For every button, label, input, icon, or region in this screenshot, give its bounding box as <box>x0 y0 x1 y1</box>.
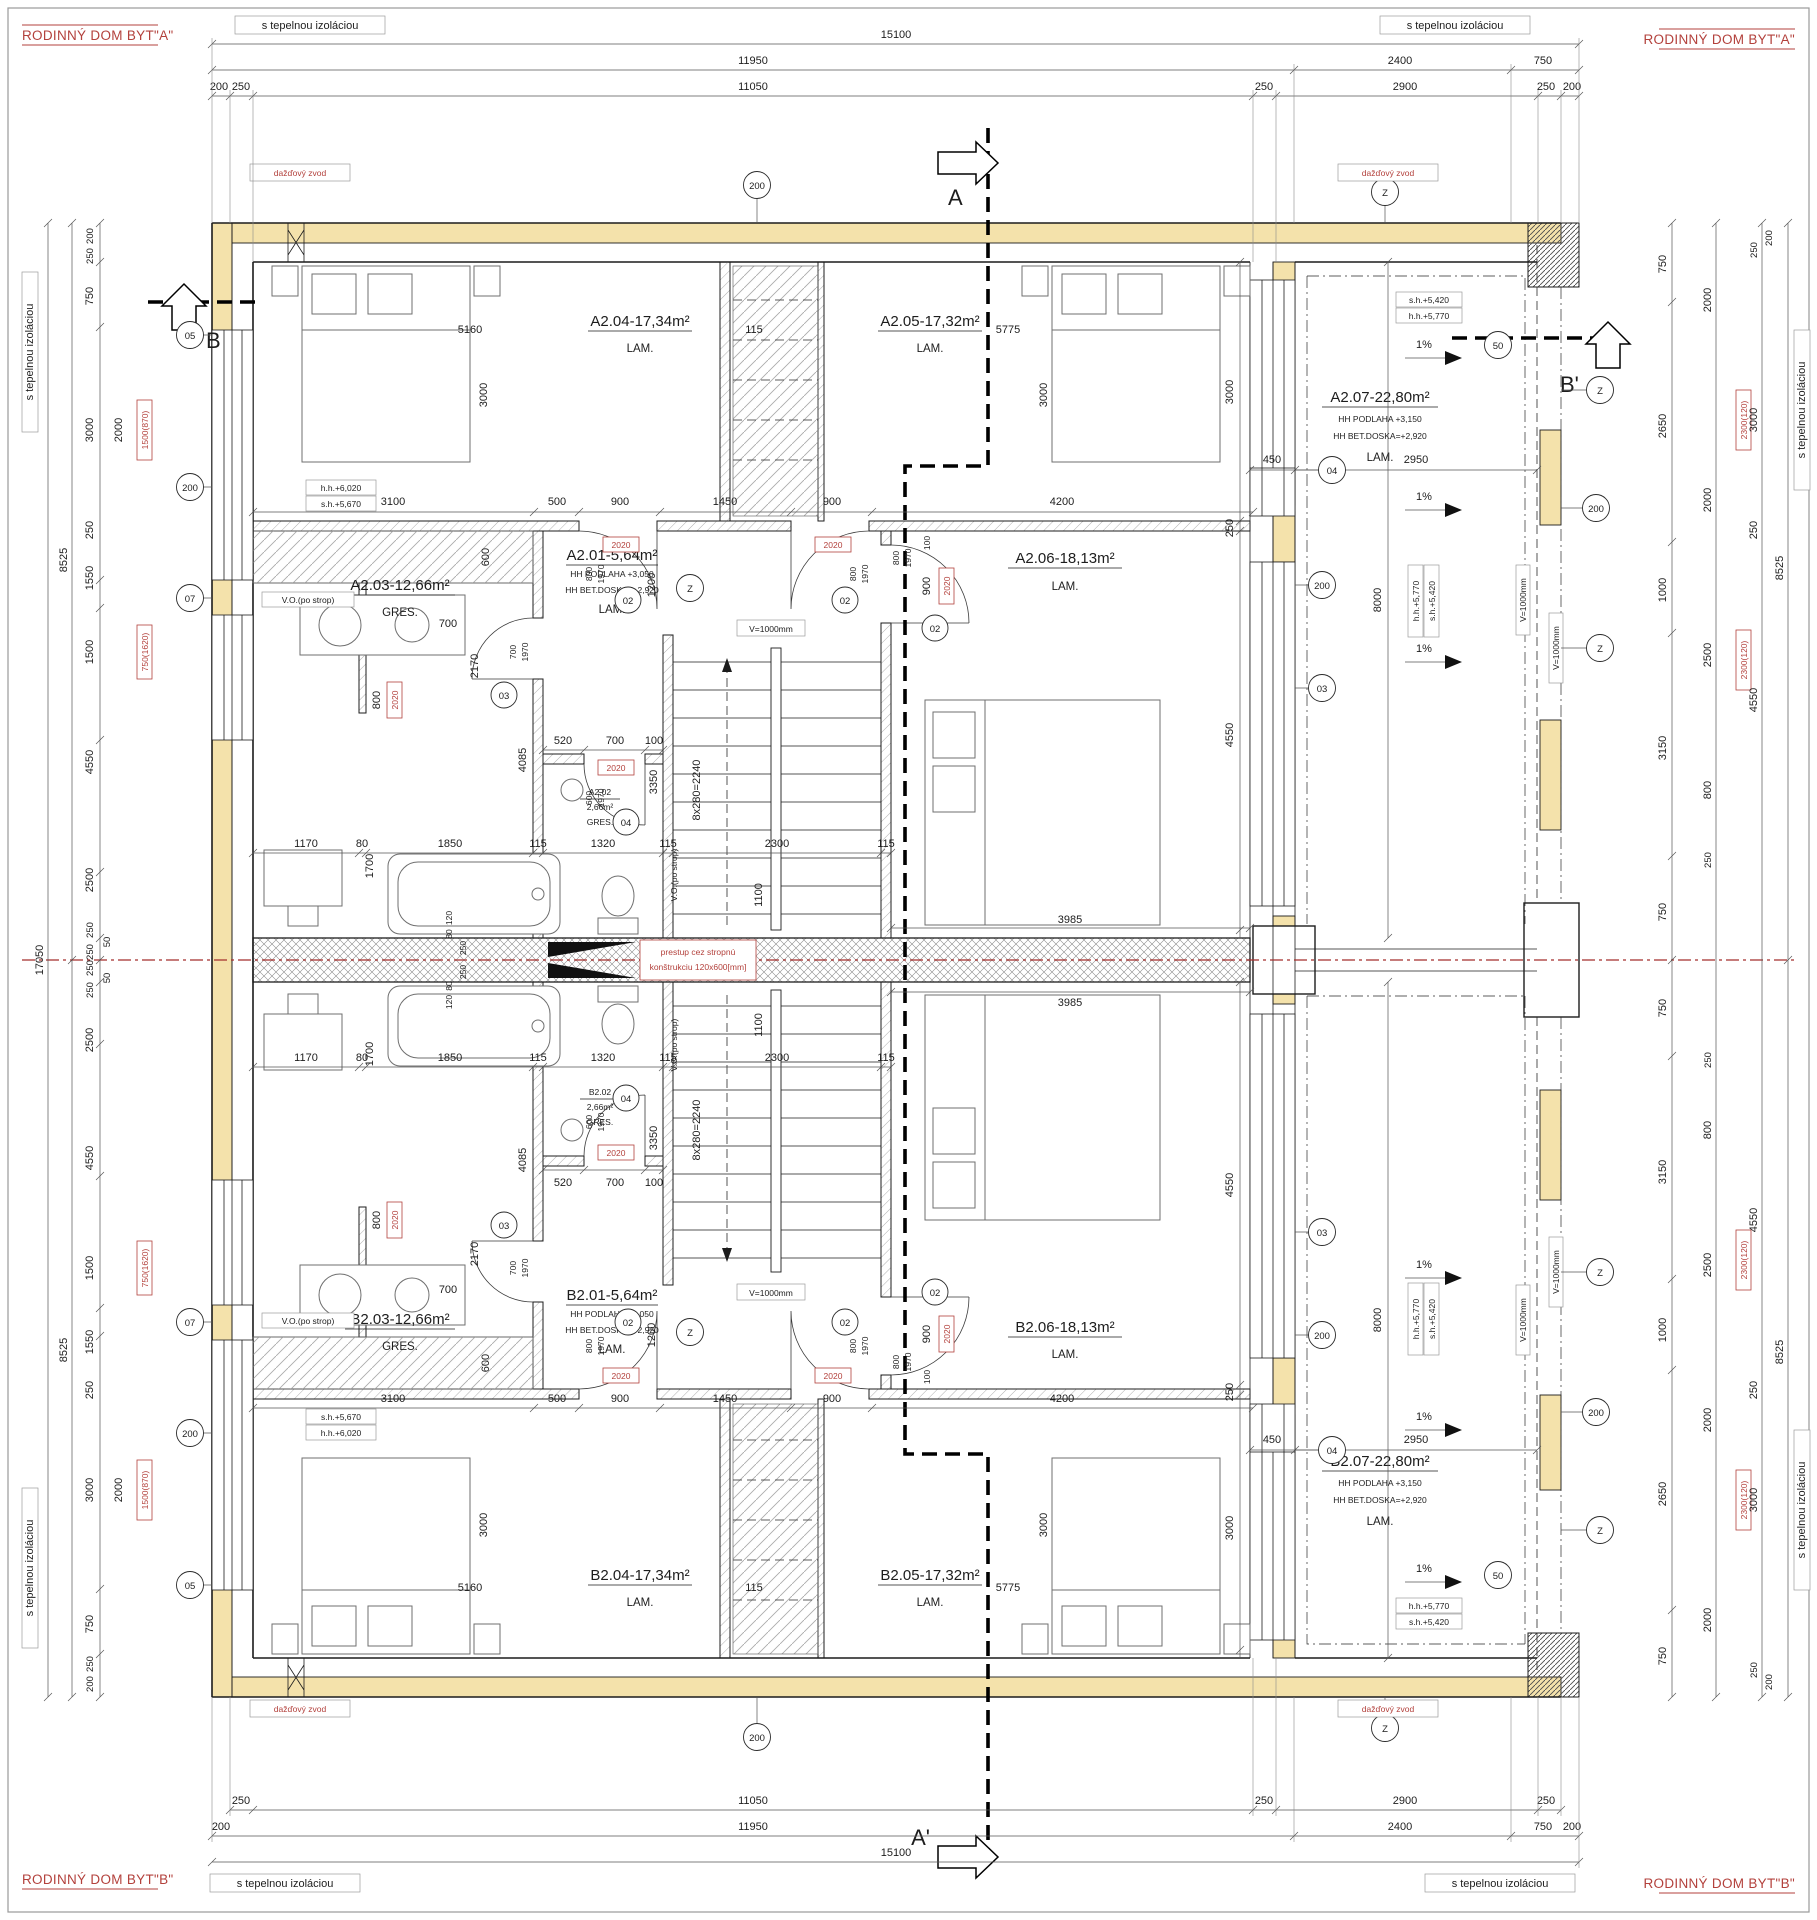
svg-text:LAM.: LAM. <box>627 1597 654 1609</box>
svg-text:900: 900 <box>921 577 933 595</box>
svg-text:3350: 3350 <box>648 1126 660 1150</box>
terrace-pier <box>1540 430 1561 525</box>
svg-text:HH PODLAHA +3,150: HH PODLAHA +3,150 <box>1338 414 1422 424</box>
svg-text:50: 50 <box>1493 341 1504 352</box>
svg-text:1500: 1500 <box>84 1256 96 1280</box>
svg-text:V=1000mm: V=1000mm <box>1518 578 1528 622</box>
svg-text:200: 200 <box>749 1733 765 1744</box>
svg-text:200: 200 <box>1764 1674 1775 1690</box>
svg-text:2950: 2950 <box>1404 454 1428 466</box>
svg-text:3000: 3000 <box>1224 1516 1236 1540</box>
svg-text:250: 250 <box>1537 81 1555 93</box>
svg-text:GRES.: GRES. <box>382 607 418 619</box>
svg-text:2000: 2000 <box>1702 1608 1714 1632</box>
svg-text:s tepelnou izoláciou: s tepelnou izoláciou <box>1796 362 1808 459</box>
svg-text:03: 03 <box>499 691 510 702</box>
svg-text:1970: 1970 <box>596 564 606 583</box>
section-a-label: A <box>948 185 963 210</box>
svg-text:4550: 4550 <box>1224 723 1236 747</box>
svg-text:GRES.: GRES. <box>382 1341 418 1353</box>
svg-text:HH BET.DOSKA=+2,920: HH BET.DOSKA=+2,920 <box>1333 431 1427 441</box>
svg-text:500: 500 <box>548 1393 566 1405</box>
svg-text:2300: 2300 <box>765 838 789 850</box>
svg-text:1850: 1850 <box>438 1052 462 1064</box>
svg-text:2500: 2500 <box>1702 1253 1714 1277</box>
svg-text:04: 04 <box>1327 466 1338 477</box>
svg-text:1170: 1170 <box>294 1052 318 1064</box>
svg-text:3000: 3000 <box>1748 408 1760 432</box>
svg-text:115: 115 <box>529 838 547 850</box>
svg-text:15100: 15100 <box>881 29 912 41</box>
svg-text:3000: 3000 <box>478 1513 490 1537</box>
svg-text:s tepelnou izoláciou: s tepelnou izoláciou <box>24 304 36 401</box>
svg-text:3985: 3985 <box>1058 914 1082 926</box>
stair-height-note: V=1000mm <box>749 624 793 634</box>
svg-text:115: 115 <box>745 324 763 336</box>
svg-text:600: 600 <box>480 548 492 566</box>
room-a204: A2.04-17,34m² <box>590 313 689 330</box>
section-a-prime-label: A' <box>911 1825 930 1850</box>
svg-text:2020: 2020 <box>942 1324 952 1343</box>
svg-text:02: 02 <box>930 1288 941 1299</box>
svg-text:600: 600 <box>584 1115 594 1129</box>
svg-text:2020: 2020 <box>607 1148 626 1158</box>
svg-text:1%: 1% <box>1416 339 1432 351</box>
svg-text:1320: 1320 <box>591 838 615 850</box>
svg-text:3000: 3000 <box>1038 1513 1050 1537</box>
svg-text:2020: 2020 <box>390 1210 400 1229</box>
svg-text:3350: 3350 <box>648 770 660 794</box>
svg-text:1%: 1% <box>1416 643 1432 655</box>
svg-text:3000: 3000 <box>84 418 96 442</box>
svg-text:800: 800 <box>371 691 383 709</box>
title-byt-b-right: RODINNÝ DOM BYT"B" <box>1644 1876 1796 1891</box>
svg-text:h.h.+6,020: h.h.+6,020 <box>321 1428 362 1438</box>
svg-text:700: 700 <box>439 1284 457 1296</box>
svg-text:2650: 2650 <box>1657 414 1669 438</box>
svg-text:4550: 4550 <box>1224 1173 1236 1197</box>
svg-text:4550: 4550 <box>1748 1208 1760 1232</box>
svg-text:800: 800 <box>891 551 901 565</box>
svg-text:HH BET.DOSKA=+2,920: HH BET.DOSKA=+2,920 <box>1333 1495 1427 1505</box>
svg-text:1%: 1% <box>1416 1411 1432 1423</box>
svg-text:3000: 3000 <box>1748 1488 1760 1512</box>
svg-text:80: 80 <box>444 929 454 939</box>
svg-text:450: 450 <box>1263 454 1281 466</box>
svg-text:s tepelnou izoláciou: s tepelnou izoláciou <box>24 1520 36 1617</box>
svg-text:800: 800 <box>848 567 858 581</box>
insulation-top <box>232 223 1561 243</box>
svg-text:8525: 8525 <box>1774 556 1786 580</box>
svg-text:V=1000mm: V=1000mm <box>1551 626 1561 670</box>
svg-text:2000: 2000 <box>1702 1408 1714 1432</box>
room-a206: A2.06-18,13m² <box>1015 550 1114 567</box>
svg-text:h.h.+5,770: h.h.+5,770 <box>1409 311 1450 321</box>
svg-text:900: 900 <box>611 1393 629 1405</box>
svg-text:1100: 1100 <box>753 883 765 907</box>
svg-text:3000: 3000 <box>1224 380 1236 404</box>
svg-text:250: 250 <box>1255 1795 1273 1807</box>
svg-text:200: 200 <box>85 228 96 244</box>
rain-drain-label: dažďový zvod <box>274 168 327 178</box>
svg-text:8000: 8000 <box>1372 588 1384 612</box>
svg-text:750: 750 <box>84 287 96 305</box>
svg-text:800: 800 <box>1702 781 1714 799</box>
svg-text:h.h.+5,770: h.h.+5,770 <box>1409 1601 1450 1611</box>
svg-text:50: 50 <box>102 937 113 948</box>
svg-text:02: 02 <box>840 596 851 607</box>
svg-text:s.h.+5,420: s.h.+5,420 <box>1427 581 1437 621</box>
svg-text:1500(870): 1500(870) <box>140 1470 150 1509</box>
svg-text:120: 120 <box>444 995 454 1009</box>
svg-text:250: 250 <box>1748 521 1760 539</box>
svg-text:1000: 1000 <box>1657 1318 1669 1342</box>
svg-text:115: 115 <box>659 838 677 850</box>
svg-text:1450: 1450 <box>713 496 737 508</box>
svg-text:2020: 2020 <box>824 1371 843 1381</box>
svg-text:3000: 3000 <box>1038 383 1050 407</box>
svg-text:1970: 1970 <box>860 1336 870 1355</box>
plan-svg: V=1000mm V=1000mm A A' B B' pres <box>0 0 1817 1920</box>
svg-text:4200: 4200 <box>1050 1393 1074 1405</box>
svg-text:11950: 11950 <box>738 1821 768 1833</box>
svg-text:2500: 2500 <box>84 1028 96 1052</box>
svg-text:750: 750 <box>1657 999 1669 1017</box>
svg-text:200: 200 <box>182 1429 198 1440</box>
room-b203: B2.03-12,66m² <box>350 1311 449 1328</box>
svg-text:750: 750 <box>1657 1647 1669 1665</box>
svg-text:02: 02 <box>930 624 941 635</box>
svg-text:250: 250 <box>1224 1383 1236 1401</box>
svg-text:1700: 1700 <box>364 1042 376 1066</box>
svg-text:250: 250 <box>85 960 96 976</box>
svg-text:s tepelnou izoláciou: s tepelnou izoláciou <box>1407 20 1504 32</box>
svg-text:s tepelnou izoláciou: s tepelnou izoláciou <box>1452 1878 1549 1890</box>
svg-text:2170: 2170 <box>469 654 481 678</box>
svg-text:2020: 2020 <box>942 576 952 595</box>
svg-text:1200: 1200 <box>646 573 658 597</box>
svg-text:1200: 1200 <box>646 1323 658 1347</box>
svg-text:HH BET.DOSKA=+2,920: HH BET.DOSKA=+2,920 <box>565 585 659 595</box>
room-b202: B2.02 <box>589 1087 611 1097</box>
section-b-prime-arrow <box>1586 322 1630 368</box>
svg-text:700: 700 <box>508 1261 518 1275</box>
svg-text:2650: 2650 <box>1657 1482 1669 1506</box>
svg-text:120: 120 <box>444 911 454 925</box>
svg-text:1970: 1970 <box>596 788 606 807</box>
svg-text:200: 200 <box>210 81 228 93</box>
svg-text:HH BET.DOSKA=+2,920: HH BET.DOSKA=+2,920 <box>565 1325 659 1335</box>
corner-pier-hatched <box>1528 223 1579 287</box>
svg-text:h.h.+5,770: h.h.+5,770 <box>1411 1299 1421 1340</box>
svg-text:GRES.: GRES. <box>587 817 613 827</box>
room-b207: B2.07-22,80m² <box>1330 1453 1429 1470</box>
svg-text:03: 03 <box>1317 684 1328 695</box>
svg-text:250: 250 <box>458 965 468 979</box>
svg-text:5775: 5775 <box>996 324 1020 336</box>
slab-pass-text-2: konštrukciu 120x600[mm] <box>650 962 747 972</box>
svg-text:V=1000mm: V=1000mm <box>1518 1298 1528 1342</box>
svg-text:250: 250 <box>1748 1381 1760 1399</box>
svg-text:05: 05 <box>185 1581 196 1592</box>
svg-text:HH PODLAHA +3,050: HH PODLAHA +3,050 <box>570 1309 654 1319</box>
svg-text:200: 200 <box>182 483 198 494</box>
svg-text:900: 900 <box>921 1325 933 1343</box>
svg-text:1320: 1320 <box>591 1052 615 1064</box>
svg-text:s.h.+5,670: s.h.+5,670 <box>321 1412 361 1422</box>
svg-text:5160: 5160 <box>458 324 482 336</box>
svg-text:500: 500 <box>548 496 566 508</box>
svg-text:520: 520 <box>554 735 572 747</box>
svg-text:700: 700 <box>606 735 624 747</box>
svg-text:11050: 11050 <box>738 1795 768 1807</box>
svg-text:02: 02 <box>623 596 634 607</box>
slab-pass-text-1: prestup cez stropnú <box>661 947 736 957</box>
insulation-bottom <box>232 1677 1561 1697</box>
svg-text:250: 250 <box>458 941 468 955</box>
svg-text:250: 250 <box>1749 242 1760 258</box>
svg-text:8x280=2240: 8x280=2240 <box>691 1100 703 1161</box>
svg-text:3150: 3150 <box>1657 1160 1669 1184</box>
svg-text:4550: 4550 <box>84 1146 96 1170</box>
svg-text:Z: Z <box>1597 386 1603 397</box>
svg-text:V=1000mm: V=1000mm <box>749 1288 793 1298</box>
svg-text:115: 115 <box>877 838 895 850</box>
svg-text:250: 250 <box>1703 852 1714 868</box>
svg-text:750(1620): 750(1620) <box>140 1248 150 1287</box>
svg-text:250: 250 <box>85 982 96 998</box>
svg-text:05: 05 <box>185 331 196 342</box>
svg-text:07: 07 <box>185 1318 196 1329</box>
title-byt-a-left: RODINNÝ DOM BYT"A" <box>22 28 174 43</box>
svg-text:800: 800 <box>1702 1121 1714 1139</box>
svg-text:1970: 1970 <box>596 1112 606 1131</box>
svg-text:100: 100 <box>922 536 932 550</box>
svg-text:800: 800 <box>891 1355 901 1369</box>
svg-text:80: 80 <box>444 981 454 991</box>
svg-text:11050: 11050 <box>738 81 768 93</box>
svg-text:200: 200 <box>212 1821 230 1833</box>
svg-text:600: 600 <box>584 791 594 805</box>
room-a207: A2.07-22,80m² <box>1330 389 1429 406</box>
svg-text:4550: 4550 <box>84 750 96 774</box>
svg-text:2020: 2020 <box>824 540 843 550</box>
svg-text:8525: 8525 <box>58 1338 70 1362</box>
svg-text:2020: 2020 <box>612 1371 631 1381</box>
svg-text:250: 250 <box>85 922 96 938</box>
svg-text:s.h.+5,420: s.h.+5,420 <box>1409 1617 1449 1627</box>
svg-text:800: 800 <box>848 1339 858 1353</box>
svg-text:750(1620): 750(1620) <box>140 632 150 671</box>
svg-text:800: 800 <box>371 1211 383 1229</box>
svg-text:1970: 1970 <box>520 1258 530 1277</box>
svg-text:115: 115 <box>659 1052 677 1064</box>
svg-text:250: 250 <box>84 521 96 539</box>
svg-text:750: 750 <box>1534 1821 1552 1833</box>
svg-text:dažďový zvod: dažďový zvod <box>1362 1704 1415 1714</box>
svg-text:HH PODLAHA +3,150: HH PODLAHA +3,150 <box>1338 1478 1422 1488</box>
svg-text:200: 200 <box>749 181 765 192</box>
svg-text:h.h.+6,020: h.h.+6,020 <box>321 483 362 493</box>
svg-text:s.h.+5,420: s.h.+5,420 <box>1427 1299 1437 1339</box>
svg-text:04: 04 <box>621 818 632 829</box>
svg-text:750: 750 <box>1657 903 1669 921</box>
svg-text:2300(120): 2300(120) <box>1739 1240 1749 1279</box>
svg-text:2950: 2950 <box>1404 1434 1428 1446</box>
svg-text:4550: 4550 <box>1748 688 1760 712</box>
svg-text:11950: 11950 <box>738 55 768 67</box>
svg-text:2000: 2000 <box>1702 488 1714 512</box>
svg-text:s.h.+5,420: s.h.+5,420 <box>1409 295 1449 305</box>
svg-text:Z: Z <box>1382 1724 1388 1735</box>
svg-text:250: 250 <box>1255 81 1273 93</box>
svg-text:h.h.+5,770: h.h.+5,770 <box>1411 581 1421 622</box>
section-b-label: B <box>206 328 221 353</box>
svg-text:1550: 1550 <box>84 566 96 590</box>
svg-text:03: 03 <box>499 1221 510 1232</box>
svg-text:1970: 1970 <box>903 1352 913 1371</box>
svg-text:V=1000mm: V=1000mm <box>1551 1250 1561 1294</box>
svg-text:200: 200 <box>1563 81 1581 93</box>
svg-text:4085: 4085 <box>517 748 529 772</box>
svg-text:100: 100 <box>922 1370 932 1384</box>
svg-text:1700: 1700 <box>364 854 376 878</box>
svg-text:1%: 1% <box>1416 491 1432 503</box>
title-byt-b-left: RODINNÝ DOM BYT"B" <box>22 1872 174 1887</box>
svg-text:1000: 1000 <box>1657 578 1669 602</box>
svg-text:250: 250 <box>85 1656 96 1672</box>
svg-text:750: 750 <box>84 1615 96 1633</box>
svg-text:LAM.: LAM. <box>1367 452 1394 464</box>
svg-text:3100: 3100 <box>381 1393 405 1405</box>
svg-text:250: 250 <box>1749 1662 1760 1678</box>
svg-text:700: 700 <box>606 1177 624 1189</box>
room-a205: A2.05-17,32m² <box>880 313 979 330</box>
svg-text:2000: 2000 <box>1702 288 1714 312</box>
svg-text:1500(870): 1500(870) <box>140 410 150 449</box>
svg-text:s tepelnou izoláciou: s tepelnou izoláciou <box>1796 1462 1808 1559</box>
svg-text:1970: 1970 <box>903 548 913 567</box>
svg-text:LAM.: LAM. <box>1052 1349 1079 1361</box>
svg-text:s tepelnou izoláciou: s tepelnou izoláciou <box>262 20 359 32</box>
svg-text:04: 04 <box>621 1094 632 1105</box>
svg-text:900: 900 <box>823 496 841 508</box>
title-byt-a-right: RODINNÝ DOM BYT"A" <box>1644 32 1796 47</box>
svg-text:200: 200 <box>1563 1821 1581 1833</box>
svg-text:600: 600 <box>480 1354 492 1372</box>
svg-text:250: 250 <box>232 1795 250 1807</box>
left-dims: s tepelnou izoláciou s tepelnou izolácio… <box>22 219 152 1701</box>
svg-text:V.O.(po strop): V.O.(po strop) <box>669 849 679 902</box>
svg-text:200: 200 <box>85 1676 96 1692</box>
svg-text:15100: 15100 <box>881 1847 912 1859</box>
section-b-prime-label: B' <box>1560 372 1579 397</box>
svg-text:4200: 4200 <box>1050 496 1074 508</box>
svg-text:200: 200 <box>1764 230 1775 246</box>
svg-text:s tepelnou izoláciou: s tepelnou izoláciou <box>237 1878 334 1890</box>
svg-text:750: 750 <box>1657 255 1669 273</box>
svg-text:dažďový zvod: dažďový zvod <box>1362 168 1415 178</box>
svg-text:5775: 5775 <box>996 1582 1020 1594</box>
svg-text:250: 250 <box>1537 1795 1555 1807</box>
svg-text:250: 250 <box>1224 519 1236 537</box>
svg-text:1550: 1550 <box>84 1330 96 1354</box>
svg-text:900: 900 <box>823 1393 841 1405</box>
svg-text:50: 50 <box>1493 1571 1504 1582</box>
svg-text:450: 450 <box>1263 1434 1281 1446</box>
svg-text:1%: 1% <box>1416 1259 1432 1271</box>
svg-text:200: 200 <box>1314 1331 1330 1342</box>
svg-text:1170: 1170 <box>294 838 318 850</box>
svg-text:3150: 3150 <box>1657 736 1669 760</box>
svg-text:250: 250 <box>84 1381 96 1399</box>
svg-text:8525: 8525 <box>1774 1340 1786 1364</box>
svg-text:700: 700 <box>439 618 457 630</box>
svg-text:3000: 3000 <box>84 1478 96 1502</box>
svg-text:1100: 1100 <box>753 1013 765 1037</box>
svg-text:LAM.: LAM. <box>627 343 654 355</box>
room-b201: B2.01-5,64m² <box>567 1287 658 1304</box>
svg-text:8000: 8000 <box>1372 1308 1384 1332</box>
svg-text:200: 200 <box>1588 1408 1604 1419</box>
svg-text:4085: 4085 <box>517 1148 529 1172</box>
svg-text:LAM.: LAM. <box>1367 1516 1394 1528</box>
svg-text:800: 800 <box>584 567 594 581</box>
svg-text:2170: 2170 <box>469 1242 481 1266</box>
svg-text:1970: 1970 <box>860 564 870 583</box>
svg-text:2300: 2300 <box>765 1052 789 1064</box>
svg-text:900: 900 <box>611 496 629 508</box>
svg-text:2300(120): 2300(120) <box>1739 640 1749 679</box>
room-b206: B2.06-18,13m² <box>1015 1319 1114 1336</box>
svg-text:dažďový zvod: dažďový zvod <box>274 1704 327 1714</box>
svg-text:520: 520 <box>554 1177 572 1189</box>
svg-text:200: 200 <box>1314 581 1330 592</box>
svg-text:2000: 2000 <box>113 418 125 442</box>
svg-text:2020: 2020 <box>607 763 626 773</box>
svg-text:Z: Z <box>1382 188 1388 199</box>
svg-text:5160: 5160 <box>458 1582 482 1594</box>
svg-text:3000: 3000 <box>478 383 490 407</box>
svg-text:1970: 1970 <box>596 1336 606 1355</box>
svg-text:V.O.(po strop): V.O.(po strop) <box>282 595 335 605</box>
svg-text:2500: 2500 <box>84 868 96 892</box>
svg-text:Z: Z <box>1597 644 1603 655</box>
svg-text:8x280=2240: 8x280=2240 <box>691 760 703 821</box>
room-b204: B2.04-17,34m² <box>590 1567 689 1584</box>
svg-text:250: 250 <box>1703 1052 1714 1068</box>
svg-text:115: 115 <box>529 1052 547 1064</box>
slope-arrows: 1% 1% 1% 1% 1% 1% <box>1405 339 1462 1589</box>
svg-text:80: 80 <box>356 838 368 850</box>
svg-text:HH PODLAHA +3,050: HH PODLAHA +3,050 <box>570 569 654 579</box>
svg-text:V.O.(po strop): V.O.(po strop) <box>282 1316 335 1326</box>
svg-text:1%: 1% <box>1416 1563 1432 1575</box>
svg-text:2020: 2020 <box>612 540 631 550</box>
svg-text:Z: Z <box>687 1328 693 1339</box>
svg-text:LAM.: LAM. <box>917 343 944 355</box>
svg-text:1850: 1850 <box>438 838 462 850</box>
svg-text:800: 800 <box>584 1339 594 1353</box>
svg-text:250: 250 <box>85 248 96 264</box>
svg-text:1970: 1970 <box>520 642 530 661</box>
svg-text:07: 07 <box>185 594 196 605</box>
svg-text:LAM.: LAM. <box>1052 581 1079 593</box>
svg-text:2,66m²: 2,66m² <box>587 1102 614 1112</box>
svg-text:1450: 1450 <box>713 1393 737 1405</box>
svg-text:100: 100 <box>645 735 663 747</box>
svg-text:s.h.+5,670: s.h.+5,670 <box>321 499 361 509</box>
